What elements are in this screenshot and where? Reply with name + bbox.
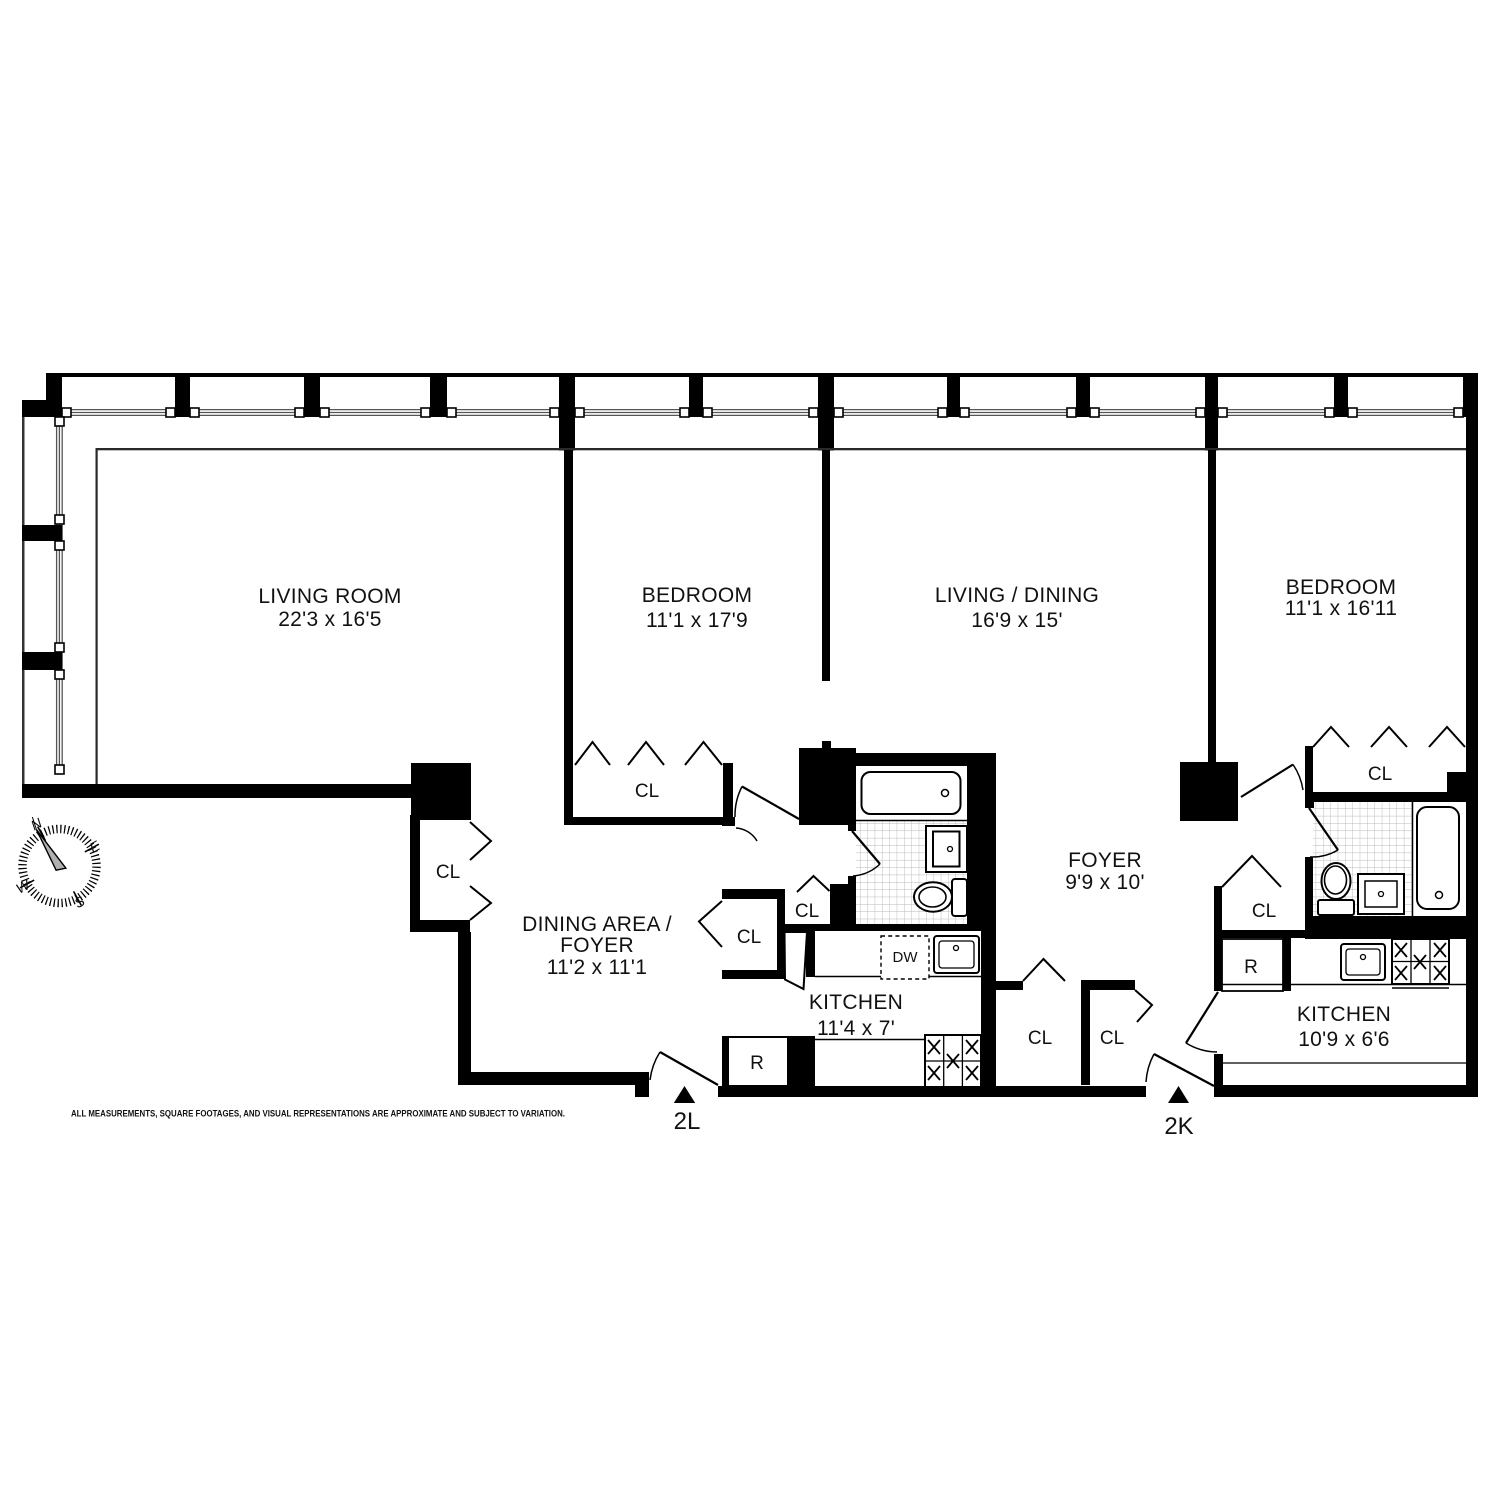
svg-text:ALL MEASUREMENTS, SQUARE FOOTA: ALL MEASUREMENTS, SQUARE FOOTAGES, AND V… (71, 1109, 565, 1120)
svg-text:CL: CL (737, 927, 761, 948)
svg-text:10'9 x 6'6: 10'9 x 6'6 (1298, 1028, 1390, 1051)
svg-text:16'9 x 15': 16'9 x 15' (971, 609, 1063, 632)
svg-text:CL: CL (1252, 901, 1276, 922)
svg-text:R: R (1244, 957, 1258, 978)
svg-text:11'1 x 16'11: 11'1 x 16'11 (1285, 597, 1397, 620)
svg-text:CL: CL (1368, 764, 1392, 785)
svg-text:FOYER: FOYER (560, 934, 634, 957)
svg-text:22'3 x 16'5: 22'3 x 16'5 (278, 608, 382, 631)
svg-text:2L: 2L (674, 1108, 701, 1135)
svg-text:CL: CL (436, 862, 460, 883)
svg-text:R: R (750, 1053, 764, 1074)
svg-text:9'9 x 10': 9'9 x 10' (1065, 871, 1145, 894)
svg-text:CL: CL (635, 781, 659, 802)
svg-text:2K: 2K (1164, 1113, 1193, 1140)
svg-text:DW: DW (893, 949, 919, 966)
svg-text:FOYER: FOYER (1068, 849, 1142, 872)
svg-text:CL: CL (1100, 1028, 1124, 1049)
svg-text:11'4 x 7': 11'4 x 7' (817, 1017, 895, 1040)
svg-text:DINING AREA /: DINING AREA / (522, 913, 672, 936)
svg-text:CL: CL (795, 901, 819, 922)
svg-text:BEDROOM: BEDROOM (1286, 576, 1397, 599)
svg-text:11'1 x 17'9: 11'1 x 17'9 (646, 609, 748, 632)
svg-text:CL: CL (1028, 1028, 1052, 1049)
svg-text:11'2 x 11'1: 11'2 x 11'1 (547, 956, 647, 979)
svg-text:KITCHEN: KITCHEN (809, 991, 903, 1014)
svg-text:LIVING ROOM: LIVING ROOM (258, 585, 401, 608)
svg-text:KITCHEN: KITCHEN (1297, 1003, 1391, 1026)
svg-text:BEDROOM: BEDROOM (642, 584, 753, 607)
svg-text:LIVING / DINING: LIVING / DINING (935, 584, 1099, 607)
